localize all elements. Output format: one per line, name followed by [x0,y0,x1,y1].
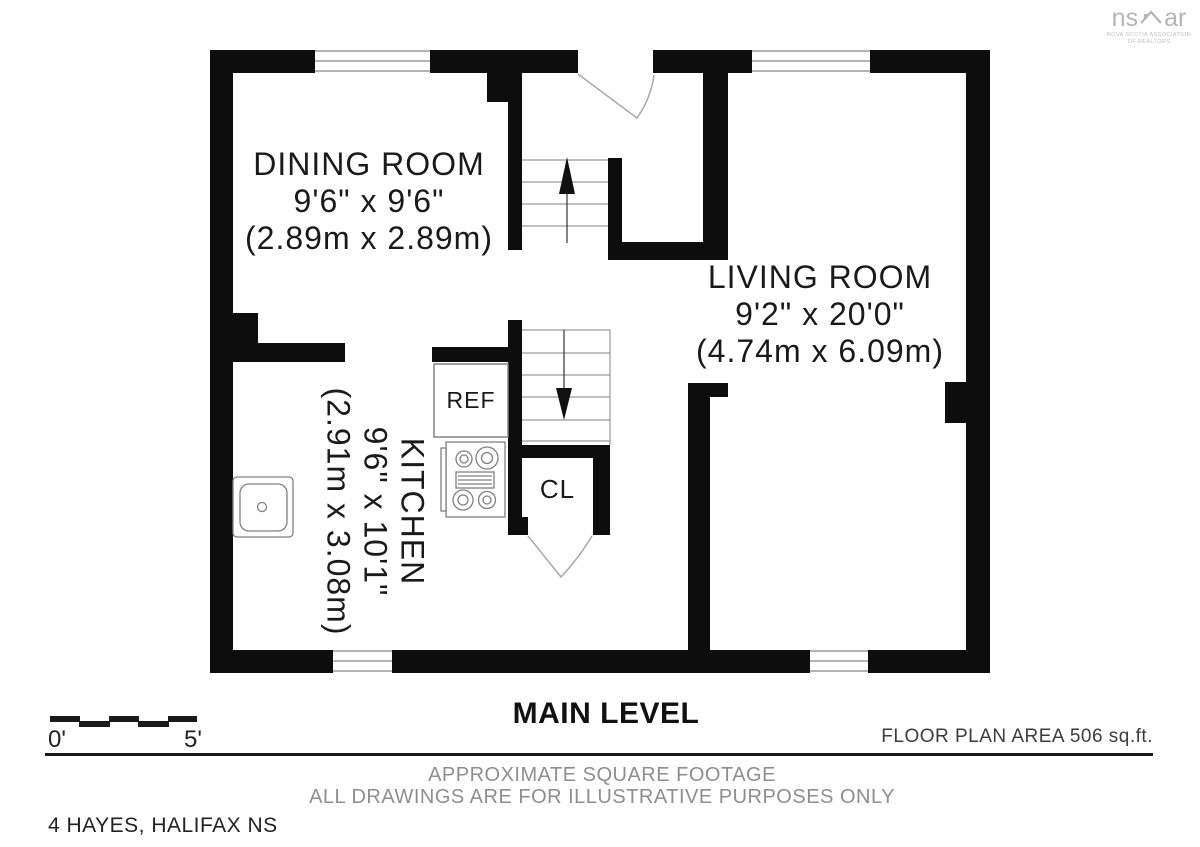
footer-divider [45,753,1153,756]
closet-door-swing [528,536,592,577]
logo-caption-line-2: OF REALTORS [1104,39,1194,45]
dining-room-dims-imperial: 9'6" x 9'6" [209,183,529,220]
disclaimer-line-2: ALL DRAWINGS ARE FOR ILLUSTRATIVE PURPOS… [298,786,906,809]
dining-room-label: DINING ROOM 9'6" x 9'6" (2.89m x 2.89m) [209,146,529,257]
logo-text-right: ar [1164,6,1186,31]
stairs-down [522,330,610,445]
kitchen-name: KITCHEN [394,377,431,647]
window-living-top [752,50,870,73]
scale-bar [50,716,197,727]
stove [441,442,505,517]
wall-bottom-segment-1 [210,650,333,673]
stairs-up-arrow [559,157,575,194]
wall-dining-south-stub [210,313,258,343]
kitchen-label: KITCHEN 9'6" x 10'1" (2.91m x 3.08m) [320,377,431,647]
floor-plan-page: DINING ROOM 9'6" x 9'6" (2.89m x 2.89m) … [0,0,1200,847]
kitchen-dims-metric: (2.91m x 3.08m) [320,377,357,647]
wall-bottom-segment-3 [868,650,990,673]
stairs-up [522,157,608,243]
window-dining-top [315,50,430,73]
dining-room-dims-metric: (2.89m x 2.89m) [209,220,529,257]
scale-start-label: 0' [48,726,66,754]
wall-right-chimney-bump [945,382,968,423]
wall-living-west [688,383,710,673]
property-address: 4 HAYES, HALIFAX NS [48,814,278,838]
plan-title: MAIN LEVEL [446,697,766,731]
wall-kitchen-north [432,347,522,362]
closet-door-jamb-right [593,517,610,535]
wall-top-segment-3 [653,50,752,73]
nsar-logo: ns ar NOVA SCOTIA ASSOCIATION OF REALTOR… [1104,6,1194,45]
refrigerator-label: REF [434,364,508,437]
wall-dining-south [233,343,345,362]
living-room-name: LIVING ROOM [660,259,980,296]
dining-room-name: DINING ROOM [209,146,529,183]
living-room-dims-imperial: 9'2" x 20'0" [660,296,980,333]
wall-left [210,50,233,673]
wall-bottom-segment-2 [392,650,810,673]
logo-caption-line-1: NOVA SCOTIA ASSOCIATION [1104,32,1194,38]
logo-text-left: ns [1112,6,1138,31]
living-room-dims-metric: (4.74m x 6.09m) [660,333,980,370]
stairs-down-arrow [556,388,572,420]
window-kitchen-bottom [333,650,392,673]
closet-label: CL [522,474,593,505]
wall-entry-tee [703,50,728,260]
kitchen-dims-imperial: 9'6" x 10'1" [357,377,394,647]
closet-door-jamb-left [508,517,528,535]
wall-top-segment-2 [430,50,578,73]
house-roof-icon [1139,9,1163,31]
disclaimer-line-1: APPROXIMATE SQUARE FOOTAGE [298,764,906,787]
nsar-logo-wordmark: ns ar [1104,6,1194,31]
window-living-bottom [810,650,868,673]
scale-end-label: 5' [184,726,202,754]
entry-door-swing [578,74,654,118]
living-room-label: LIVING ROOM 9'2" x 20'0" (4.74m x 6.09m) [660,259,980,370]
floor-plan-area-note: FLOOR PLAN AREA 506 sq.ft. [881,726,1153,748]
wall-closet-top [522,445,610,458]
wall-stairwell-inner-stub [608,158,622,246]
kitchen-sink [233,477,293,537]
